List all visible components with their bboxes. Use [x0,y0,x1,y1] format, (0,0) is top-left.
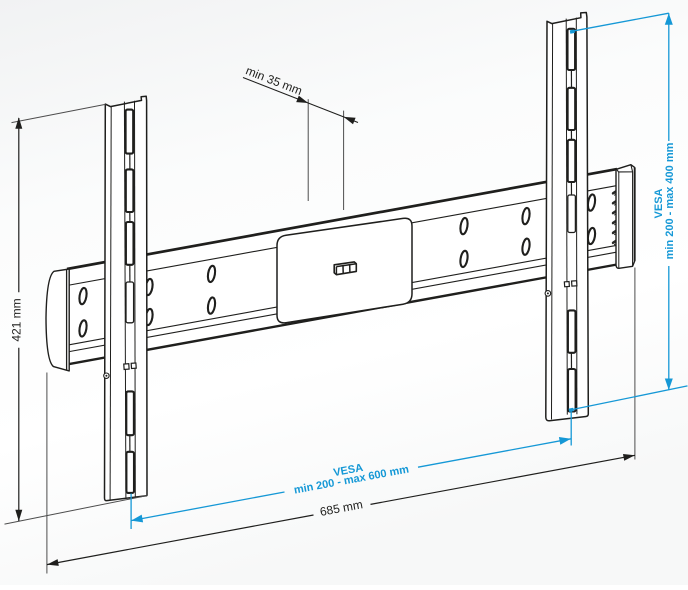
svg-text:421 mm: 421 mm [10,298,24,341]
svg-text:min 200 - max 400 mm: min 200 - max 400 mm [664,142,676,259]
